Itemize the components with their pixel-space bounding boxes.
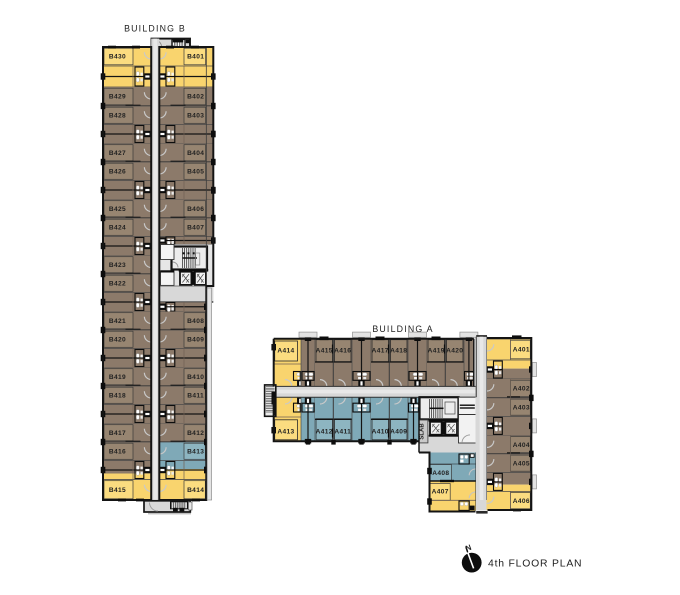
svg-text:B405: B405	[187, 168, 204, 175]
svg-text:B402: B402	[187, 94, 204, 101]
svg-text:B403: B403	[187, 112, 204, 119]
svg-text:A401: A401	[513, 347, 530, 354]
svg-text:A404: A404	[513, 442, 530, 449]
svg-text:BUILDING B: BUILDING B	[124, 24, 186, 34]
svg-text:A403: A403	[513, 404, 530, 411]
svg-text:A402: A402	[513, 386, 530, 393]
svg-text:B417: B417	[109, 430, 126, 437]
svg-text:A409: A409	[390, 429, 407, 436]
svg-text:A416: A416	[334, 348, 351, 355]
svg-text:B422: B422	[109, 280, 126, 287]
svg-text:B421: B421	[109, 318, 126, 325]
svg-text:B409: B409	[187, 336, 204, 343]
svg-text:A408: A408	[432, 470, 449, 477]
svg-text:A412: A412	[316, 429, 333, 436]
svg-text:B420: B420	[109, 336, 126, 343]
svg-text:B410: B410	[187, 374, 204, 381]
svg-text:B419: B419	[109, 374, 126, 381]
svg-text:B406: B406	[187, 206, 204, 213]
svg-text:B414: B414	[187, 487, 204, 494]
svg-text:B425: B425	[109, 206, 126, 213]
svg-text:B412: B412	[187, 430, 204, 437]
svg-text:B407: B407	[187, 224, 204, 231]
svg-text:B401: B401	[187, 54, 204, 61]
svg-text:B408: B408	[187, 318, 204, 325]
svg-text:A418: A418	[390, 348, 407, 355]
svg-text:A411: A411	[334, 429, 351, 436]
svg-text:B428: B428	[109, 112, 126, 119]
svg-text:B430: B430	[109, 54, 126, 61]
svg-text:B424: B424	[109, 224, 126, 231]
svg-text:B415: B415	[109, 487, 126, 494]
svg-text:B427: B427	[109, 150, 126, 157]
svg-text:A410: A410	[372, 429, 389, 436]
svg-text:A406: A406	[513, 498, 530, 505]
svg-text:A415: A415	[316, 348, 333, 355]
svg-text:B423: B423	[109, 262, 126, 269]
svg-text:A405: A405	[513, 460, 530, 467]
svg-text:B404: B404	[187, 150, 204, 157]
svg-text:B413: B413	[187, 448, 204, 455]
svg-text:A419: A419	[428, 348, 445, 355]
svg-text:4th FLOOR PLAN: 4th FLOOR PLAN	[488, 558, 582, 569]
svg-text:B429: B429	[109, 94, 126, 101]
svg-text:A420: A420	[446, 348, 463, 355]
svg-text:A417: A417	[372, 348, 389, 355]
svg-text:B411: B411	[187, 392, 204, 399]
svg-text:B418: B418	[109, 392, 126, 399]
svg-text:B416: B416	[109, 448, 126, 455]
svg-text:B426: B426	[109, 168, 126, 175]
svg-text:A407: A407	[432, 489, 449, 496]
svg-text:A413: A413	[277, 429, 294, 436]
svg-text:A414: A414	[277, 348, 294, 355]
svg-text:SLAB: SLAB	[420, 423, 426, 440]
